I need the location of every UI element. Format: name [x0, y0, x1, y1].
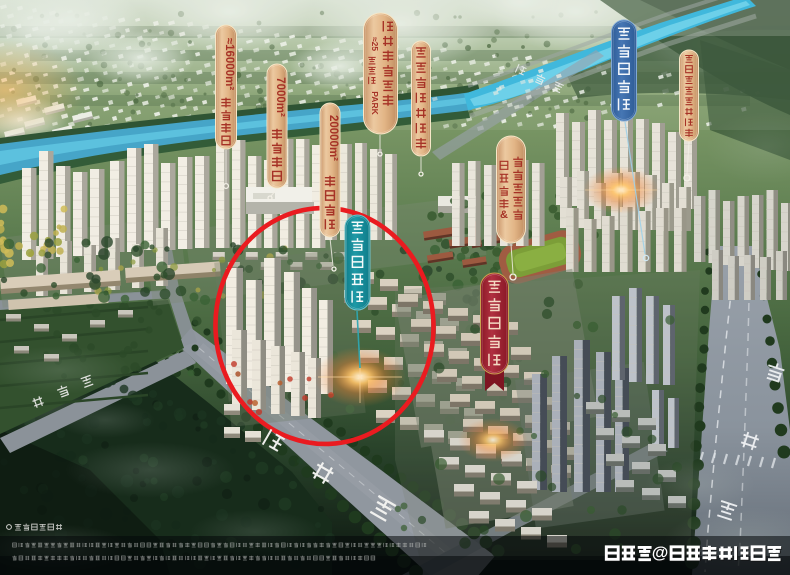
svg-text:PARK: PARK [370, 91, 380, 115]
svg-text:7000m²: 7000m² [274, 77, 286, 117]
svg-text:20000m²: 20000m² [327, 115, 339, 161]
svg-text:≈16000m²: ≈16000m² [223, 38, 235, 91]
svg-text:≈25: ≈25 [370, 37, 380, 51]
svg-text:@: @ [652, 543, 669, 562]
svg-text:&: & [500, 209, 508, 221]
